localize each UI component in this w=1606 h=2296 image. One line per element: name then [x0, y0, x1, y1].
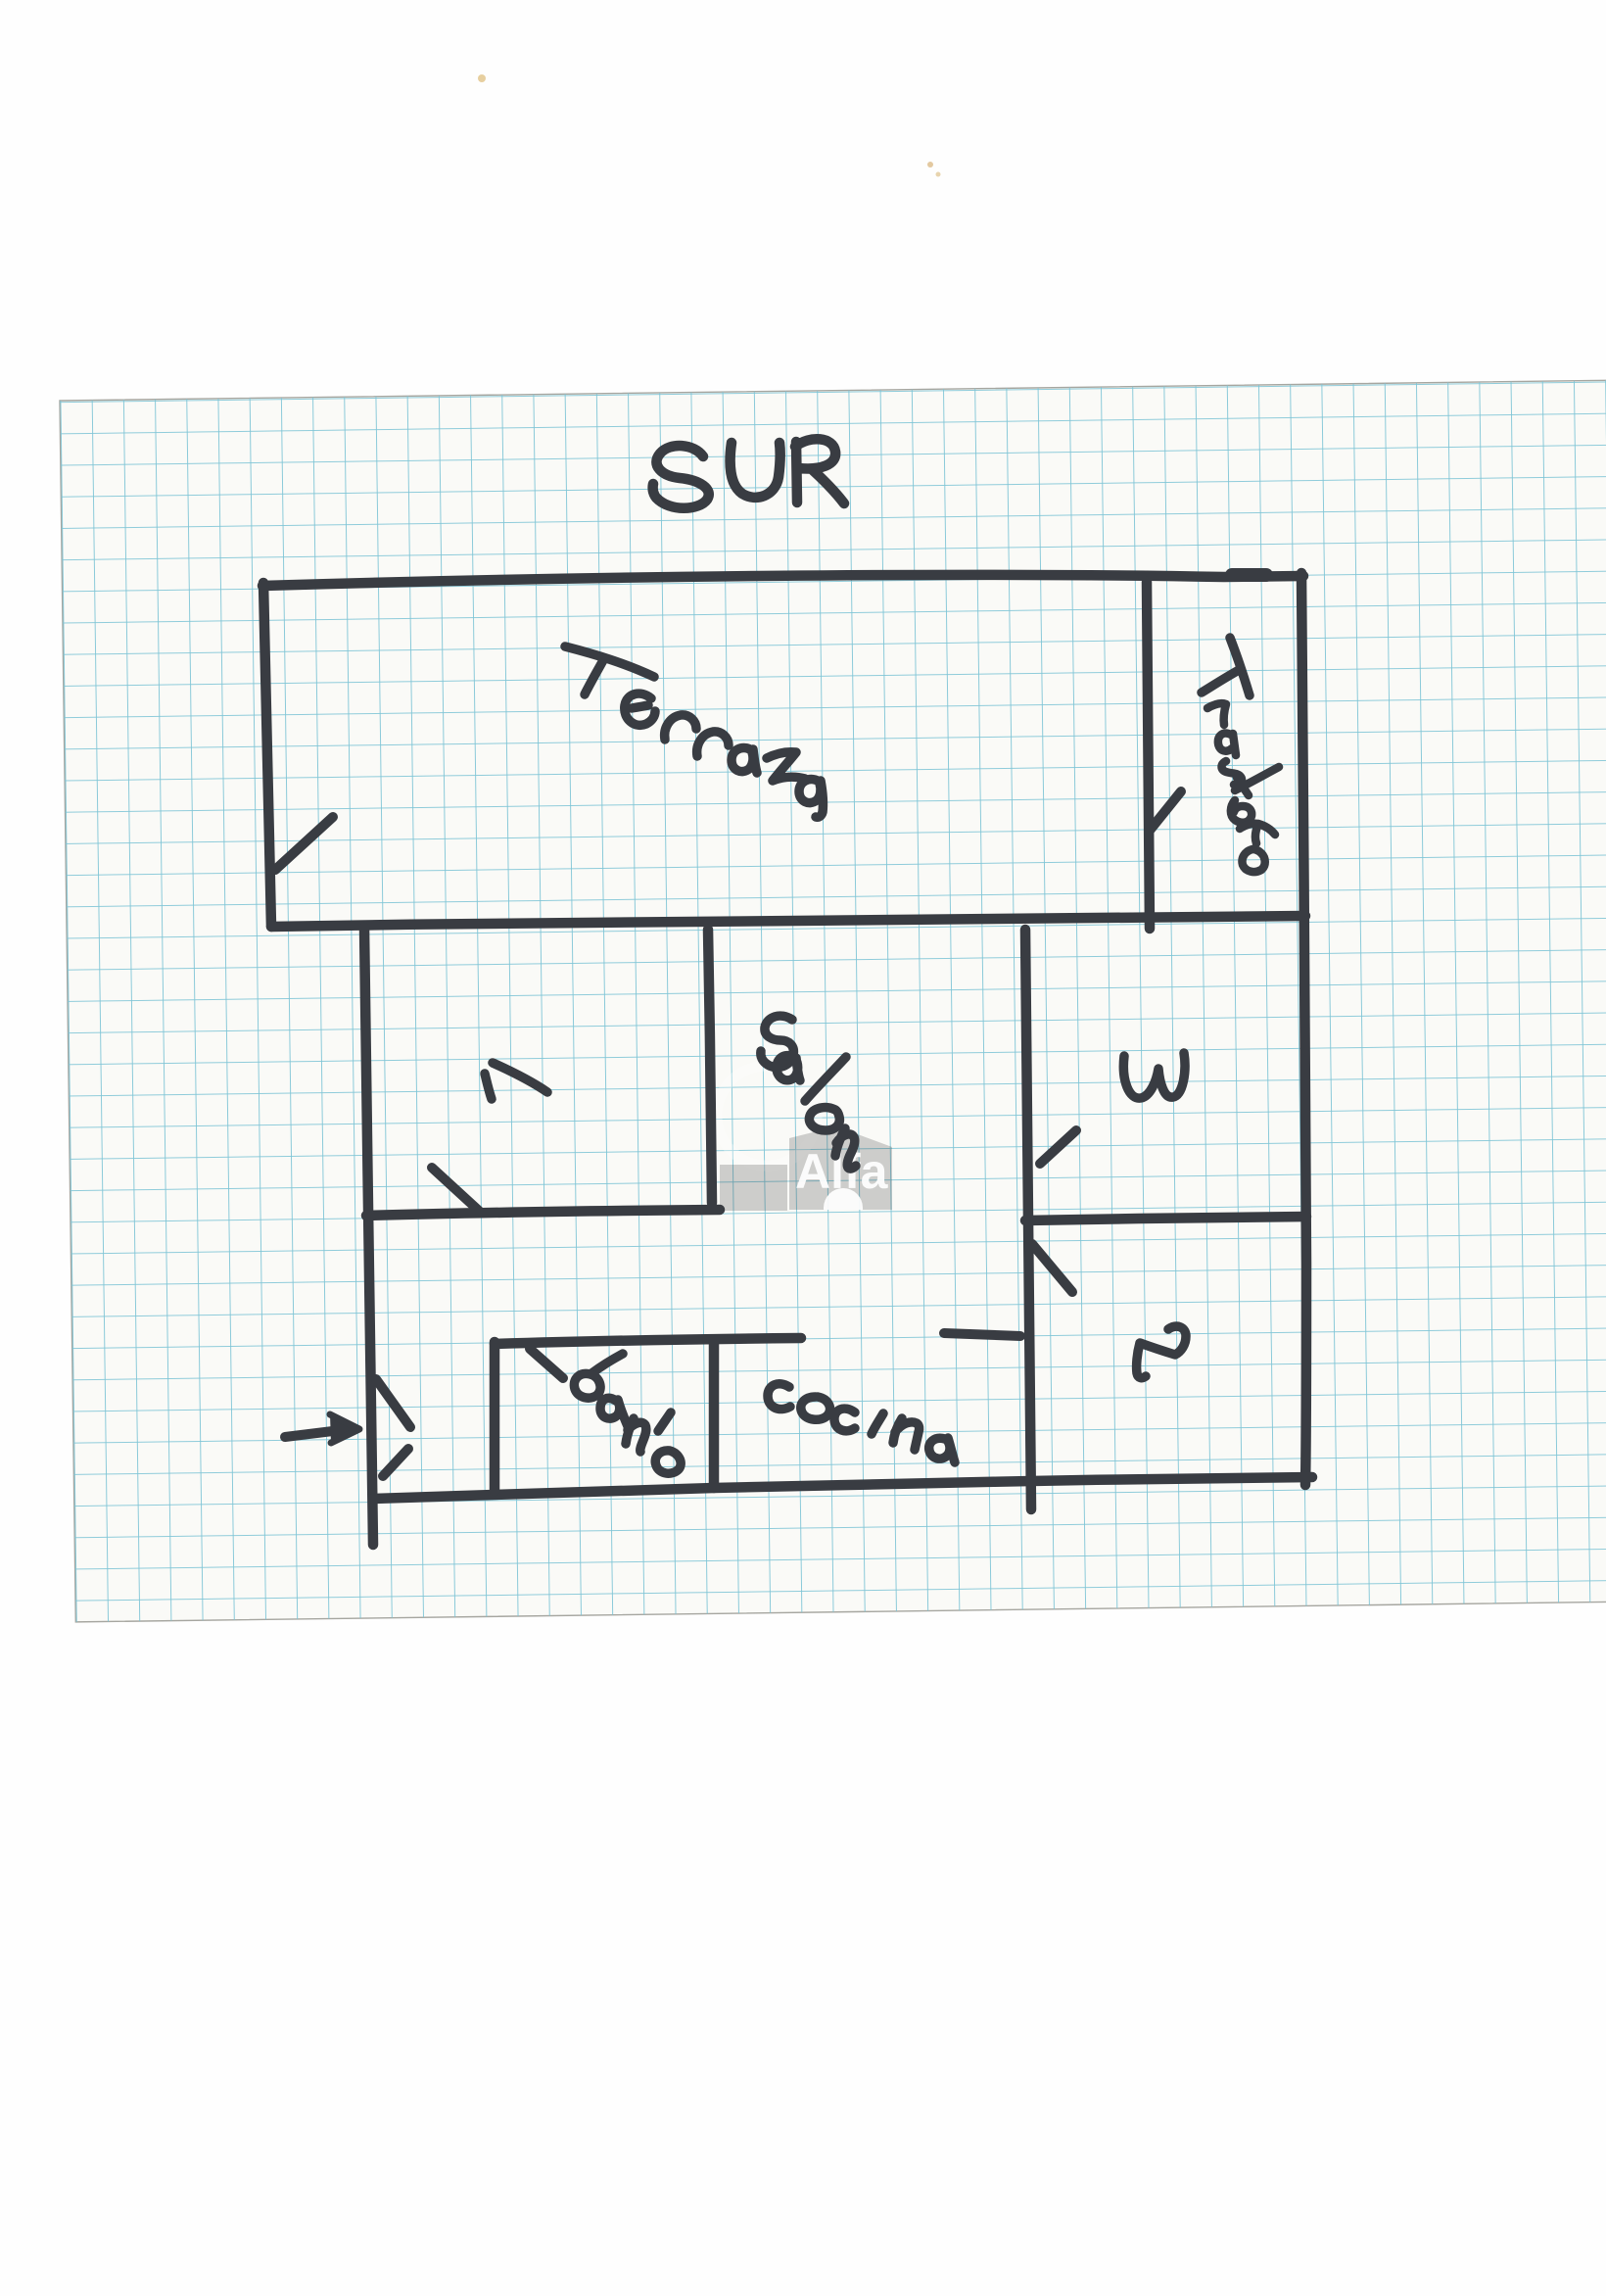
- svg-text:Alfa: Alfa: [795, 1144, 889, 1199]
